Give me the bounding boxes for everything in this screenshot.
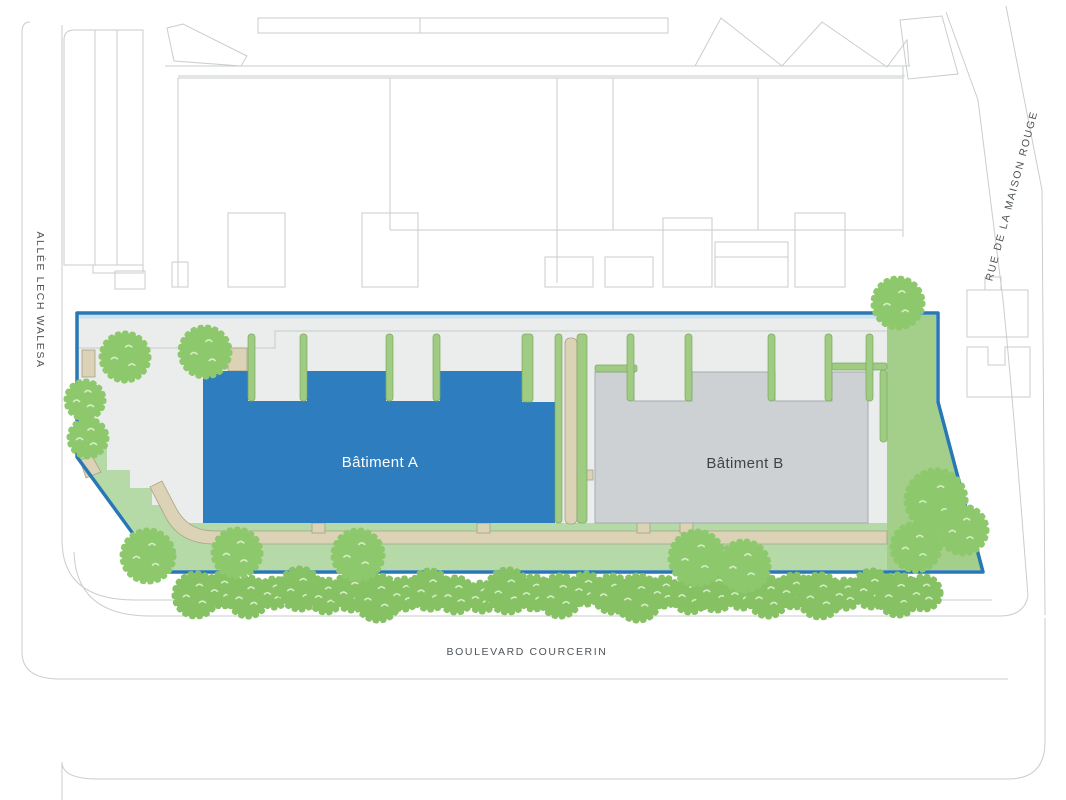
tree xyxy=(122,530,174,582)
parcel-outline xyxy=(228,213,285,287)
parcel-outline xyxy=(605,257,653,287)
top-edge-strip xyxy=(79,315,937,319)
road-right-east-curb xyxy=(1006,6,1045,615)
parcel-outline xyxy=(795,213,845,287)
tree xyxy=(670,531,724,585)
building-a-label: Bâtiment A xyxy=(342,454,419,471)
street-label-rue-de-la-maison-rouge: RUE DE LA MAISON ROUGE xyxy=(983,110,1040,283)
tree xyxy=(333,530,383,580)
parcel-outline xyxy=(900,16,958,79)
parcel-outline xyxy=(967,347,1030,397)
parcel-outline xyxy=(178,66,903,287)
parcel-outline xyxy=(95,30,117,265)
parcel-outline xyxy=(172,262,188,287)
parcel-outline xyxy=(258,18,668,33)
parcel-outline xyxy=(545,257,593,287)
tree xyxy=(939,506,987,554)
sidewalk-band xyxy=(165,66,910,76)
site-plan-page: Bâtiment A Bâtiment B ALLÉE LECH WALESA … xyxy=(0,0,1066,800)
parcel-outline xyxy=(64,30,143,265)
parcel-outline xyxy=(967,290,1028,337)
tree xyxy=(892,523,940,571)
parcel-outline xyxy=(93,265,143,273)
tree xyxy=(873,278,923,328)
parcel-outline xyxy=(178,78,903,230)
parcel-outline xyxy=(115,271,145,289)
street-label-boulevard-courcerin: BOULEVARD COURCERIN xyxy=(447,646,608,658)
parcel-outline xyxy=(663,218,712,287)
site-plan-map: Bâtiment A Bâtiment B ALLÉE LECH WALESA … xyxy=(0,0,1066,800)
tree xyxy=(180,327,230,377)
tree xyxy=(907,576,941,610)
tree xyxy=(101,333,149,381)
tree xyxy=(69,419,107,457)
parcel-outline xyxy=(167,24,247,66)
tree xyxy=(66,381,104,419)
tree xyxy=(719,541,769,591)
street-label-allee-lech-walesa: ALLÉE LECH WALESA xyxy=(34,231,47,368)
building-b-label: Bâtiment B xyxy=(706,455,783,472)
tree xyxy=(213,529,261,577)
footpath-corridor xyxy=(565,338,577,524)
footpath-stub xyxy=(477,523,490,533)
footpath-stub xyxy=(637,523,650,533)
sawtooth-roof-outline xyxy=(695,18,909,67)
parcel-outline xyxy=(715,242,788,287)
footpath-patch xyxy=(82,350,95,377)
footpath-stub xyxy=(312,523,325,533)
